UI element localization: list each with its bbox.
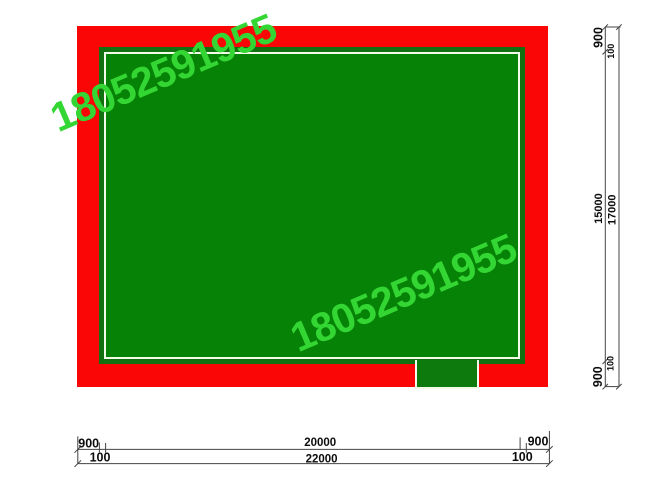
svg-text:100: 100 — [512, 450, 533, 464]
svg-text:17000: 17000 — [606, 195, 618, 226]
svg-text:900: 900 — [591, 366, 605, 387]
svg-text:100: 100 — [90, 450, 111, 464]
svg-text:20000: 20000 — [304, 437, 336, 449]
svg-text:15000: 15000 — [593, 193, 605, 224]
svg-text:100: 100 — [605, 356, 615, 371]
svg-text:100: 100 — [606, 44, 616, 59]
svg-text:900: 900 — [592, 27, 606, 48]
svg-text:900: 900 — [78, 436, 99, 450]
svg-text:900: 900 — [528, 434, 549, 448]
svg-text:22000: 22000 — [306, 453, 338, 465]
